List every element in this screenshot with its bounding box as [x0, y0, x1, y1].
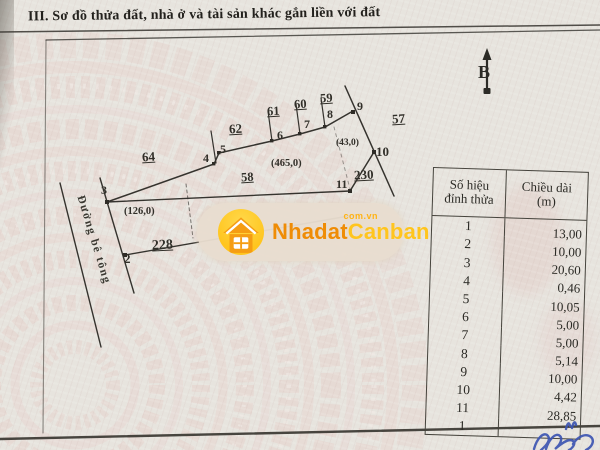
vertex-label-3: 3 — [101, 184, 107, 196]
house-icon — [218, 209, 264, 255]
vertex-label-11: 11 — [336, 178, 347, 190]
watermark-pill: NhadatCanban com.vn — [197, 203, 404, 261]
area-label-465: (465,0) — [271, 159, 302, 170]
vertex-label-10: 10 — [376, 145, 389, 158]
vertex-label-5: 5 — [220, 143, 226, 155]
adjacent-parcel-label-57: 57 — [392, 112, 406, 126]
north-label: B — [478, 62, 490, 83]
adjacent-parcel-label-64: 64 — [142, 150, 156, 164]
table-header-vertex: Số hiệu đỉnh thửa — [432, 168, 505, 217]
vertex-label-2: 2 — [124, 252, 131, 265]
brand-domain-text: com.vn — [343, 211, 378, 221]
adjacent-parcel-label-60: 60 — [294, 98, 307, 111]
adjacent-parcel-label-59: 59 — [320, 92, 333, 105]
vertex-label-7: 7 — [304, 118, 310, 130]
middle-boundary — [107, 191, 350, 202]
brand-text: NhadatCanban — [272, 221, 430, 243]
vertex-label-6: 6 — [277, 129, 283, 141]
adjacent-parcel-label-230: 230 — [354, 167, 374, 181]
table-header-length: Chiều dài (m) — [504, 170, 588, 219]
area-label-43: (43,0) — [336, 139, 359, 149]
scanned-land-certificate-page: III. Sơ đồ thửa đất, nhà ở và tài sản kh… — [0, 0, 600, 450]
vertex-label-8: 8 — [327, 108, 333, 120]
adjacent-parcel-label-61: 61 — [267, 105, 280, 118]
signature-mark — [520, 405, 600, 450]
table-header: Số hiệu đỉnh thửa Chiều dài (m) — [432, 168, 587, 221]
measurement-table: Số hiệu đỉnh thửa Chiều dài (m) 113,00 2… — [425, 167, 589, 440]
area-label-126: (126,0) — [124, 207, 155, 218]
adjacent-parcel-label-228: 228 — [152, 238, 174, 253]
adjacent-parcel-label-62: 62 — [229, 122, 243, 136]
frame-top-border — [46, 30, 600, 40]
vertex-label-9: 9 — [357, 100, 363, 112]
dashed-divider-left — [186, 184, 193, 238]
frame-left-border — [43, 40, 46, 433]
vertex-label-4: 4 — [203, 152, 209, 164]
title-rule — [0, 25, 600, 32]
adjacent-parcel-label-58: 58 — [241, 171, 254, 184]
